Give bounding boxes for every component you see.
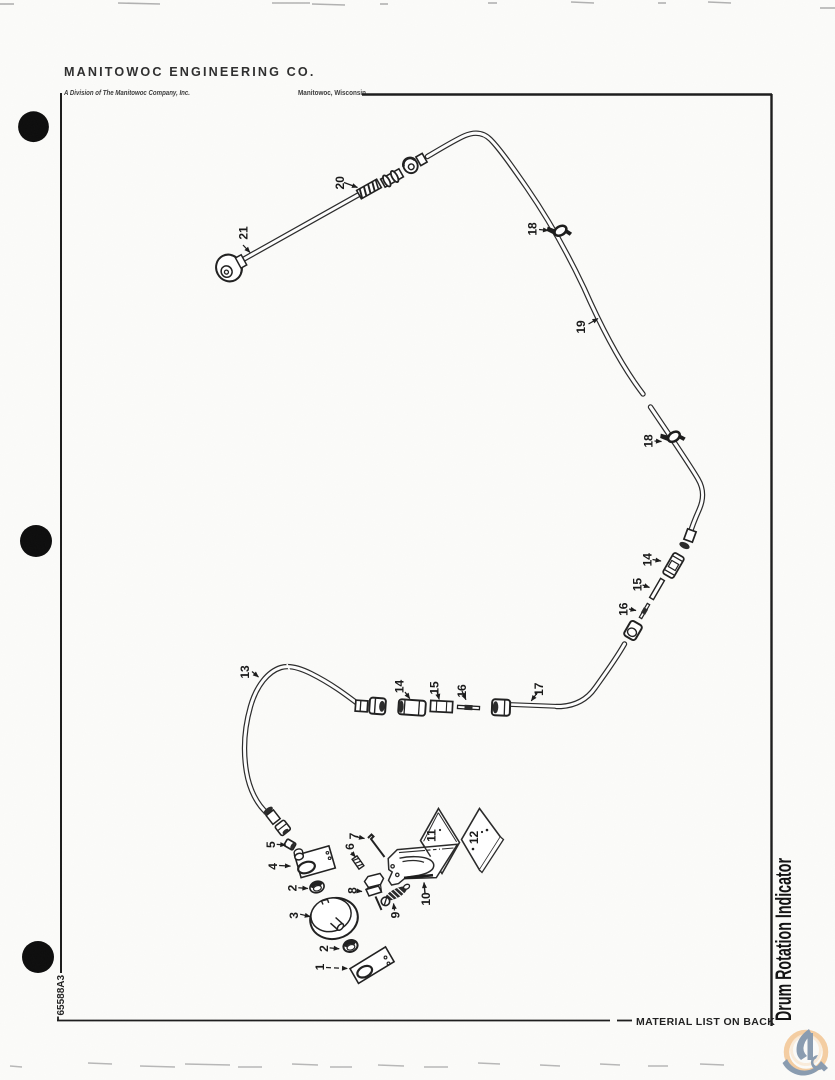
svg-text:18: 18	[641, 434, 655, 448]
svg-text:14: 14	[393, 680, 407, 694]
svg-text:21: 21	[237, 226, 251, 240]
svg-text:15: 15	[428, 681, 442, 695]
svg-text:10: 10	[419, 892, 433, 906]
svg-text:5: 5	[264, 841, 278, 848]
svg-text:16: 16	[617, 602, 631, 616]
svg-text:1: 1	[313, 963, 327, 970]
svg-text:12: 12	[467, 831, 481, 845]
svg-text:11: 11	[425, 829, 439, 842]
svg-text:19: 19	[574, 320, 588, 334]
svg-text:7: 7	[347, 832, 361, 839]
svg-text:9: 9	[389, 911, 403, 918]
svg-text:13: 13	[238, 665, 252, 679]
svg-text:3: 3	[287, 912, 301, 919]
svg-text:18: 18	[526, 222, 540, 236]
svg-text:15: 15	[631, 578, 645, 592]
svg-text:8: 8	[346, 887, 360, 894]
svg-text:2: 2	[286, 884, 300, 891]
svg-text:14: 14	[640, 553, 654, 567]
svg-text:4: 4	[266, 863, 280, 870]
svg-text:17: 17	[532, 682, 546, 696]
svg-text:2: 2	[317, 945, 331, 952]
svg-text:16: 16	[455, 684, 469, 698]
svg-text:6: 6	[343, 843, 357, 850]
